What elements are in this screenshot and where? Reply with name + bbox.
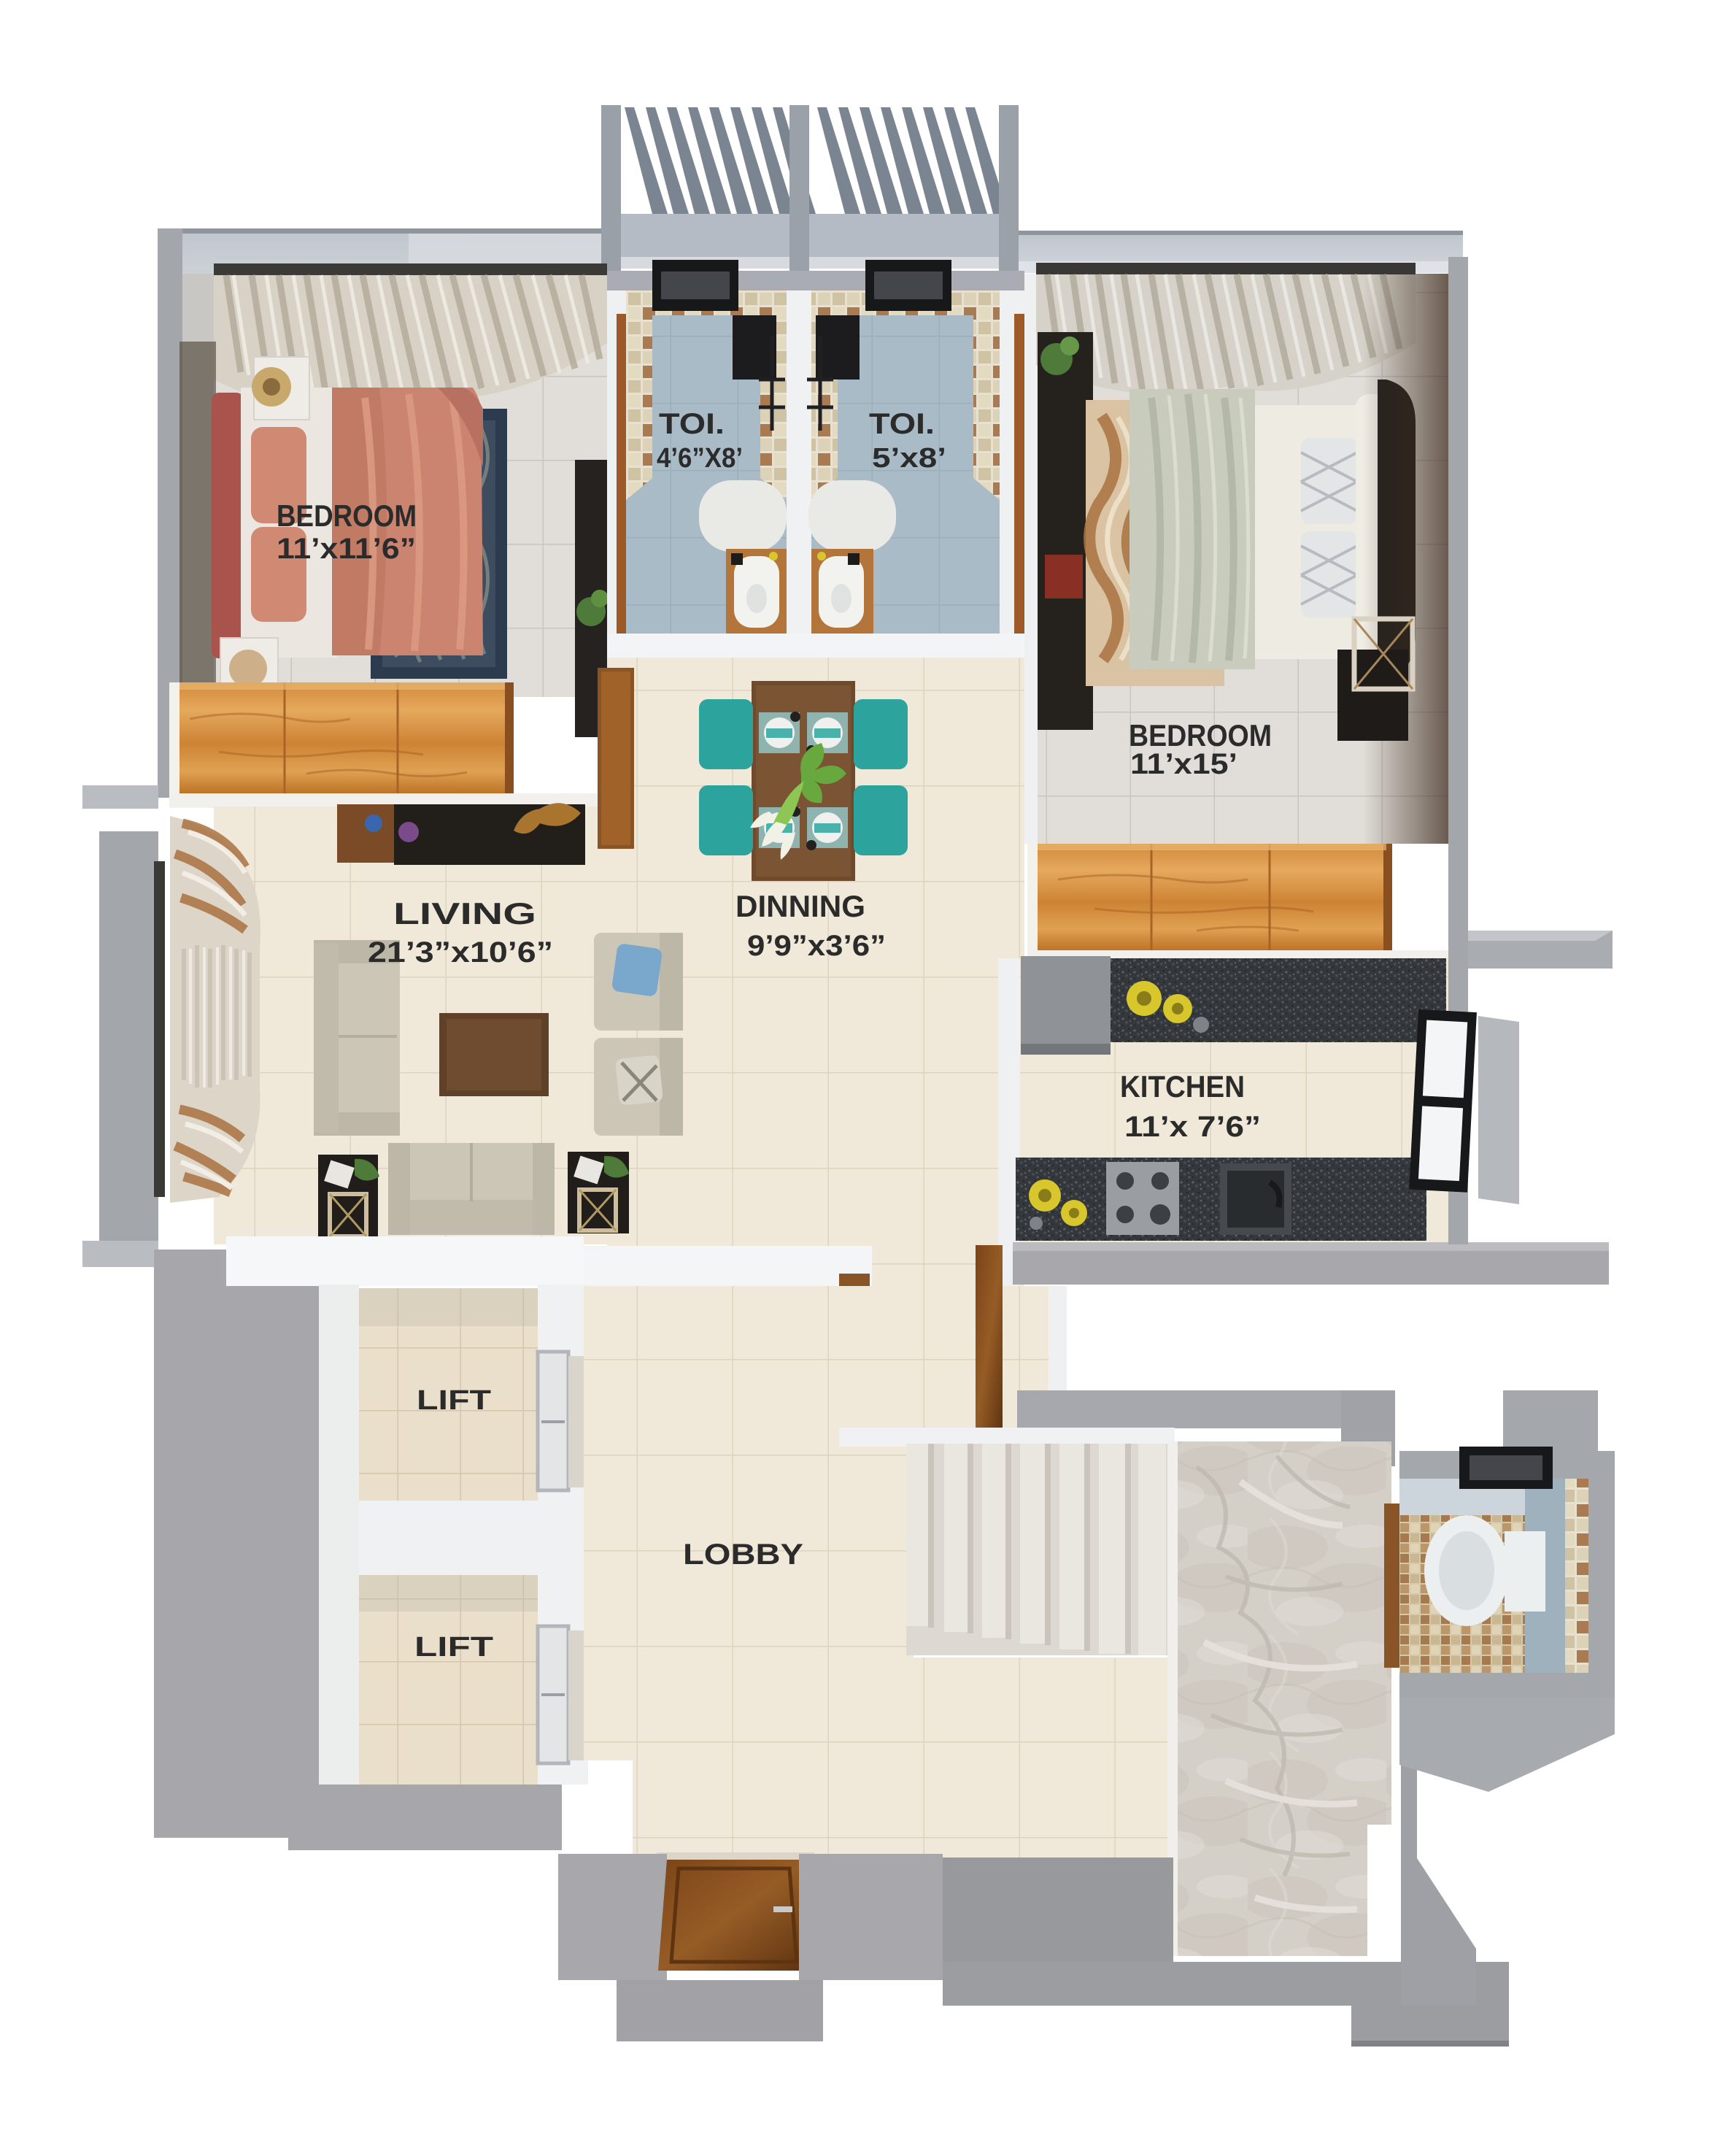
- svg-text:TOI.: TOI.: [869, 408, 935, 440]
- svg-text:KITCHEN: KITCHEN: [1120, 1069, 1245, 1104]
- svg-text:BEDROOM: BEDROOM: [277, 498, 417, 533]
- svg-text:11’x 7’6”: 11’x 7’6”: [1124, 1111, 1261, 1143]
- svg-text:LIVING: LIVING: [393, 896, 536, 931]
- svg-text:LIFT: LIFT: [417, 1385, 491, 1416]
- svg-text:4’6”X8’: 4’6”X8’: [657, 443, 743, 474]
- svg-text:5’x8’: 5’x8’: [872, 443, 946, 474]
- svg-text:BEDROOM: BEDROOM: [1129, 718, 1272, 752]
- svg-text:DINNING: DINNING: [735, 889, 865, 923]
- svg-text:11’x11’6”: 11’x11’6”: [277, 533, 416, 565]
- svg-text:9’9”x3’6”: 9’9”x3’6”: [747, 930, 886, 962]
- svg-text:LOBBY: LOBBY: [683, 1539, 803, 1571]
- svg-text:TOI.: TOI.: [659, 408, 725, 440]
- svg-text:11’x15’: 11’x15’: [1130, 748, 1237, 780]
- svg-text:21’3”x10’6”: 21’3”x10’6”: [368, 936, 553, 969]
- svg-text:LIFT: LIFT: [414, 1632, 493, 1663]
